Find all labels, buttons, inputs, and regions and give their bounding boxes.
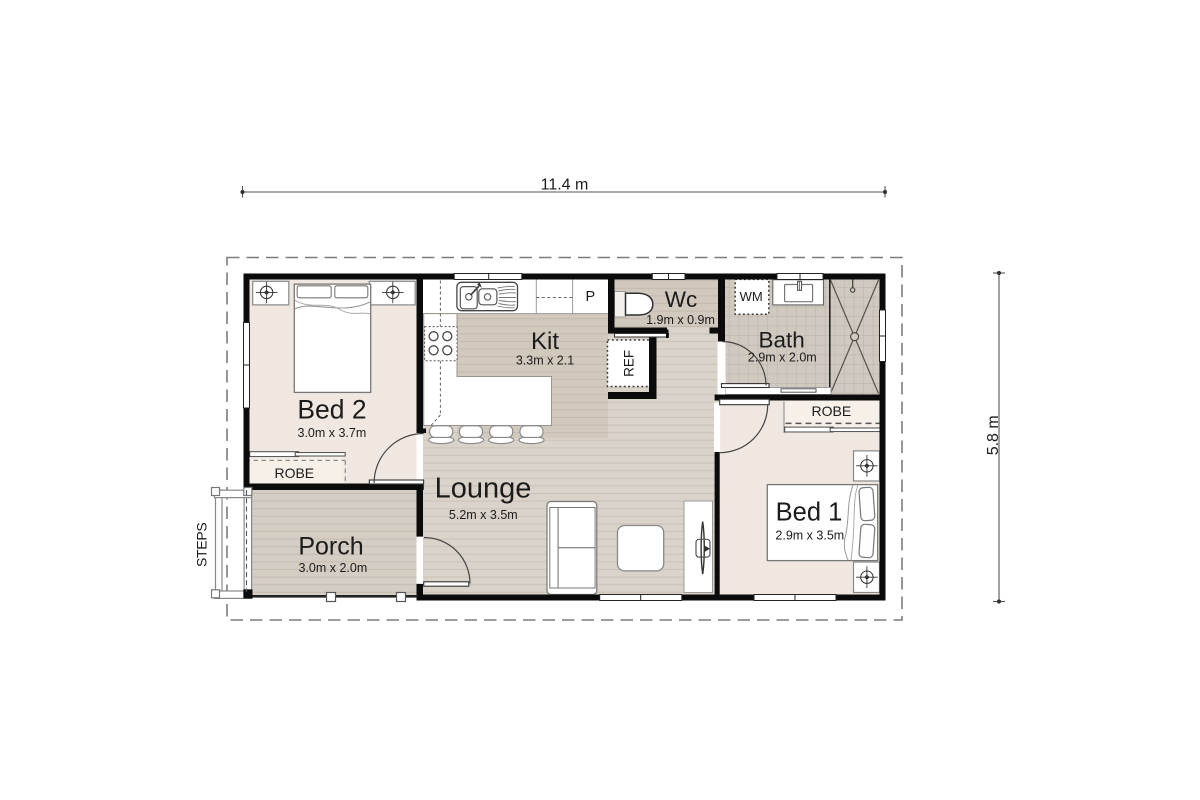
svg-text:Porch: Porch [298,533,363,561]
svg-text:Kit: Kit [531,328,559,355]
svg-text:Lounge: Lounge [435,473,532,505]
svg-text:ROBE: ROBE [274,465,314,481]
svg-text:REF: REF [622,350,637,377]
svg-text:Bed 2: Bed 2 [297,395,366,425]
svg-text:STEPS: STEPS [194,523,210,567]
svg-text:3.0m x 2.0m: 3.0m x 2.0m [299,561,368,575]
svg-text:1.9m x 0.9m: 1.9m x 0.9m [646,313,715,327]
svg-text:11.4 m: 11.4 m [541,176,589,193]
svg-text:Wc: Wc [665,287,698,312]
svg-text:Bath: Bath [758,328,804,353]
svg-text:Bed 1: Bed 1 [776,499,843,527]
svg-text:5.8 m: 5.8 m [985,415,1002,455]
svg-text:ROBE: ROBE [812,403,852,419]
svg-text:2.9m x 3.5m: 2.9m x 3.5m [775,529,844,543]
svg-text:2.9m x 2.0m: 2.9m x 2.0m [748,351,817,365]
svg-text:P: P [585,289,595,305]
svg-text:3.3m x 2.1: 3.3m x 2.1 [516,354,574,368]
svg-text:5.2m x 3.5m: 5.2m x 3.5m [449,508,518,522]
svg-text:WM: WM [740,289,763,304]
svg-text:3.0m x 3.7m: 3.0m x 3.7m [298,426,367,440]
